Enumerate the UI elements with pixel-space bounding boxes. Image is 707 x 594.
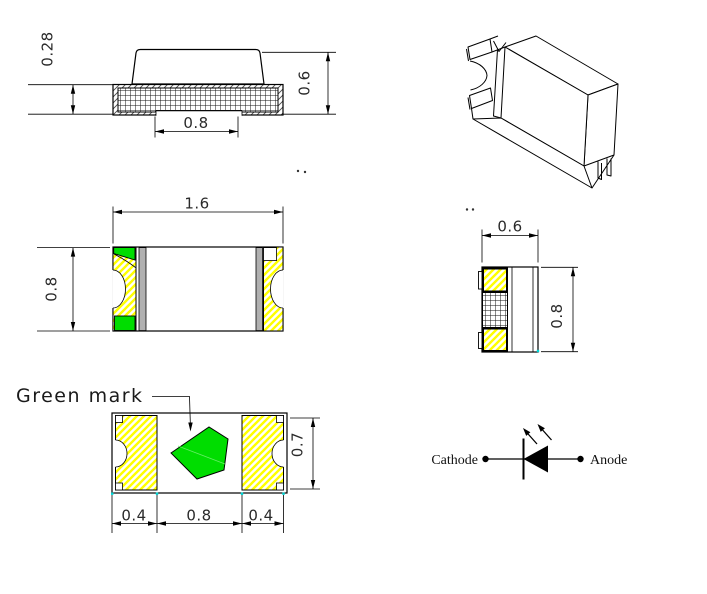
cathode-terminal-dot <box>482 456 488 462</box>
left-separator-strip <box>139 248 146 331</box>
dim-right-pad: 0.4 <box>248 507 273 525</box>
iso-end-face <box>584 84 618 166</box>
anode-label: Anode <box>590 453 627 468</box>
end-top-pad <box>483 269 507 292</box>
substrate-grid-core <box>118 88 278 112</box>
green-mark-bottom-icon <box>115 316 136 331</box>
cathode-label: Cathode <box>431 453 478 468</box>
dim-center: 0.8 <box>186 507 211 525</box>
dim-pad-height: 0.7 <box>289 432 307 457</box>
dim-slug-width: 0.8 <box>183 114 208 132</box>
dim-width: 0.8 <box>43 276 61 301</box>
dim-left-pad: 0.4 <box>121 507 146 525</box>
end-grid-core <box>483 293 508 328</box>
right-terminal-corner-notch <box>264 248 277 261</box>
end-pad-tab-bottom <box>479 333 483 349</box>
drawing-canvas: 0.28 0.6 0.8 <box>0 0 707 594</box>
right-separator-strip <box>256 248 263 331</box>
dim-end-width: 0.6 <box>497 218 522 236</box>
anode-terminal-dot <box>577 456 583 462</box>
dim-total-height: 0.6 <box>296 70 314 95</box>
dim-base-height: 0.28 <box>39 31 57 66</box>
led-package-drawing: 0.28 0.6 0.8 <box>0 0 707 594</box>
end-bottom-pad <box>483 329 507 352</box>
dim-end-height: 0.8 <box>548 303 566 328</box>
dim-length: 1.6 <box>184 195 209 213</box>
green-mark-label: Green mark <box>16 385 144 407</box>
end-pad-tab-top <box>479 272 483 290</box>
